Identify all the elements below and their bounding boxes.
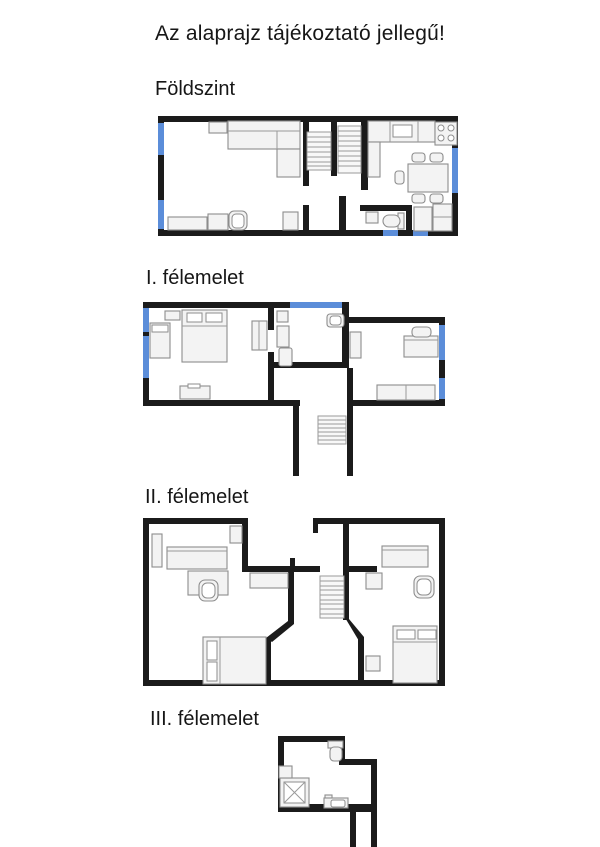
chair <box>199 580 218 601</box>
desk-chair <box>412 327 431 337</box>
side-table <box>209 122 227 133</box>
chair <box>430 153 443 162</box>
chair <box>395 171 404 184</box>
floorplan-iii-felemelet <box>275 734 390 847</box>
kitchen-sink <box>393 125 412 137</box>
stove <box>435 122 457 145</box>
chair-right <box>414 576 434 598</box>
toilet <box>383 213 404 229</box>
page-title: Az alaprajz tájékoztató jellegű! <box>0 22 600 46</box>
double-bed-right <box>393 626 437 683</box>
toilet <box>279 348 292 366</box>
sideboard <box>168 217 207 230</box>
small-cabinet <box>366 573 382 589</box>
staircase <box>320 576 344 618</box>
washing-machine <box>277 326 289 347</box>
desk <box>167 547 227 569</box>
shelf <box>277 311 288 322</box>
shower <box>280 778 309 807</box>
staircase <box>318 416 346 444</box>
hall-cabinet <box>250 573 288 588</box>
sink <box>324 795 348 808</box>
wc-sink <box>366 212 378 223</box>
nightstand <box>165 311 180 320</box>
long-dresser <box>377 385 435 400</box>
floor-label-foldszint: Földszint <box>155 78 235 101</box>
armchair <box>229 211 247 230</box>
chair <box>430 194 443 203</box>
nightstand <box>366 656 380 671</box>
floor-label-ii-felemelet: II. félemelet <box>145 486 248 509</box>
floor-label-i-felemelet: I. félemelet <box>146 267 244 290</box>
wardrobe-right <box>350 332 361 358</box>
floor-label-iii-felemelet: III. félemelet <box>150 708 259 731</box>
chair <box>412 194 425 203</box>
double-bed <box>182 310 227 362</box>
shelf <box>230 526 242 543</box>
coffee-table <box>208 214 228 230</box>
bathroom-sink <box>327 314 344 327</box>
single-bed <box>150 323 170 358</box>
desk-right <box>382 546 428 567</box>
tall-cabinet <box>152 534 162 567</box>
dresser <box>180 384 210 399</box>
corner-sofa <box>228 121 300 177</box>
wash-basin <box>279 766 292 778</box>
storage-cabinets <box>414 204 452 231</box>
floorplan-i-felemelet <box>140 298 452 480</box>
wardrobe <box>252 321 267 350</box>
desk <box>404 336 438 357</box>
dining-table <box>395 153 448 203</box>
cabinet <box>283 212 298 230</box>
toilet <box>328 741 343 761</box>
floorplan-foldszint <box>140 110 465 242</box>
double-bed-left <box>203 637 266 684</box>
floorplan-ii-felemelet <box>140 514 450 694</box>
chair <box>412 153 425 162</box>
